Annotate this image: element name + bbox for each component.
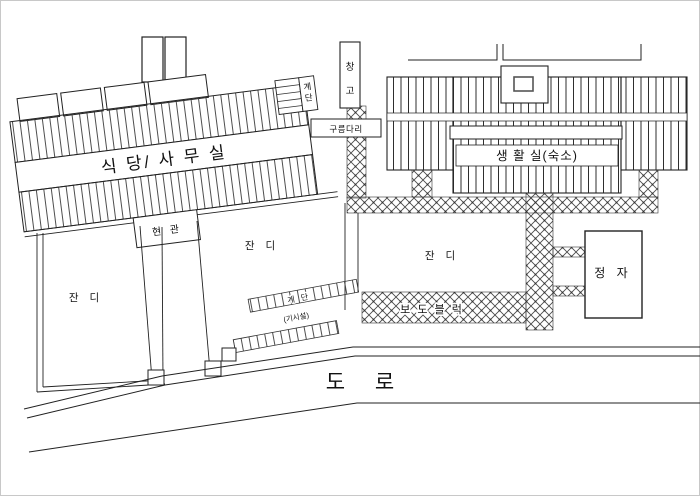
site-plan-drawing: 식 당/ 사 무 실 현 관 계단 창고 구름다리 (0, 0, 700, 496)
pavement-stub-right (639, 170, 658, 197)
pavilion-walk-upper (553, 247, 585, 257)
dorm-corridor-band (450, 126, 622, 139)
pavement-stub-left (412, 170, 432, 197)
lawn-middle-label: 잔 디 (245, 240, 279, 252)
warehouse-label-bottom: 고 (346, 86, 355, 97)
pavement-strip-north (347, 197, 658, 213)
bridge-label: 구름다리 (329, 124, 362, 134)
dorm-roof-structure-inner (514, 77, 533, 91)
roof-end-stairs: 계단 (275, 76, 318, 115)
dorm-thin-band (387, 113, 687, 121)
dormitory-label: 생 활 실(숙소) (496, 149, 578, 163)
pavement-label: 보 도 블 럭 (400, 303, 464, 316)
roof-stairs-label-bottom: 단 (304, 92, 313, 103)
boundary-post-mid (222, 348, 236, 361)
lawn-court-label: 잔 디 (425, 250, 459, 262)
dorm-left-wing (387, 77, 453, 170)
road-label: 도 로 (326, 371, 406, 394)
pavilion-label: 정 자 (594, 266, 631, 280)
pavement-strip-center (526, 193, 553, 330)
tank-box-left (142, 37, 163, 82)
warehouse (340, 42, 360, 108)
roof-stairs-label-top: 계 (303, 81, 312, 92)
pavilion-walk-lower (553, 286, 585, 296)
dorm-right-wing (621, 77, 687, 170)
site-plan-page: 식 당/ 사 무 실 현 관 계단 창고 구름다리 (0, 0, 700, 496)
tank-box-right (165, 37, 186, 82)
lawn-left-label: 잔 디 (69, 292, 103, 304)
warehouse-label-top: 창 (346, 62, 355, 73)
